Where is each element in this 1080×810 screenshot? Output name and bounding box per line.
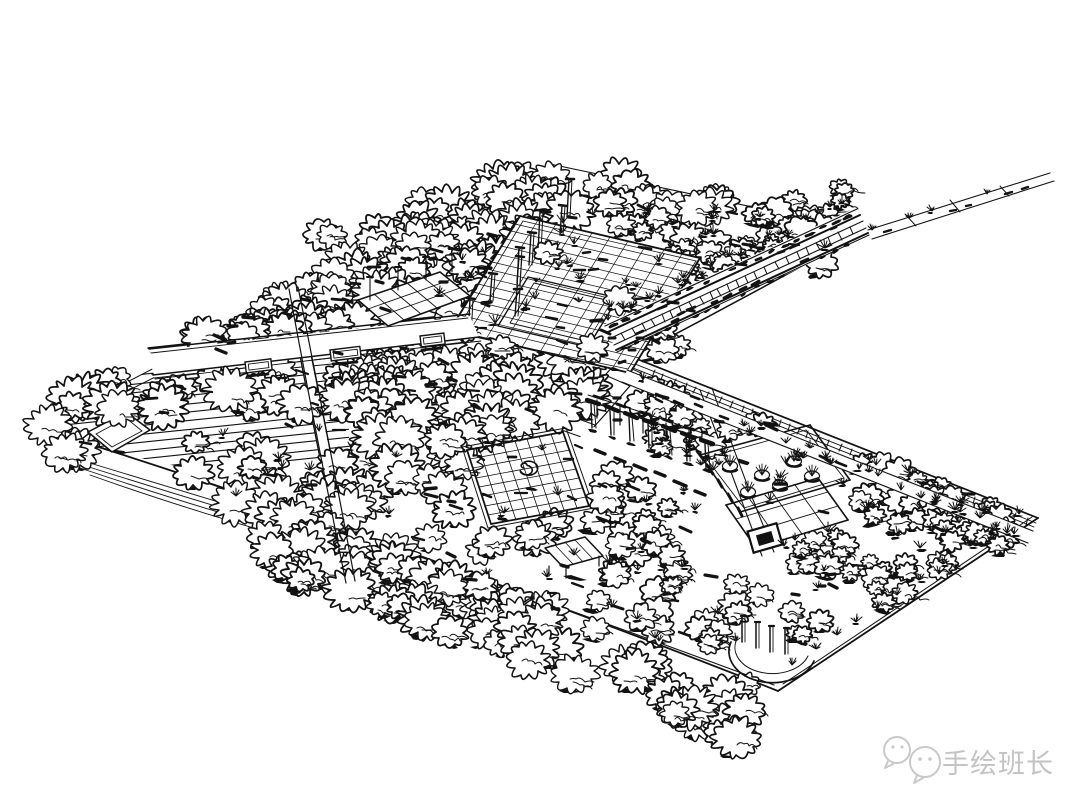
svg-text:手绘班长: 手绘班长 [942,749,1054,779]
